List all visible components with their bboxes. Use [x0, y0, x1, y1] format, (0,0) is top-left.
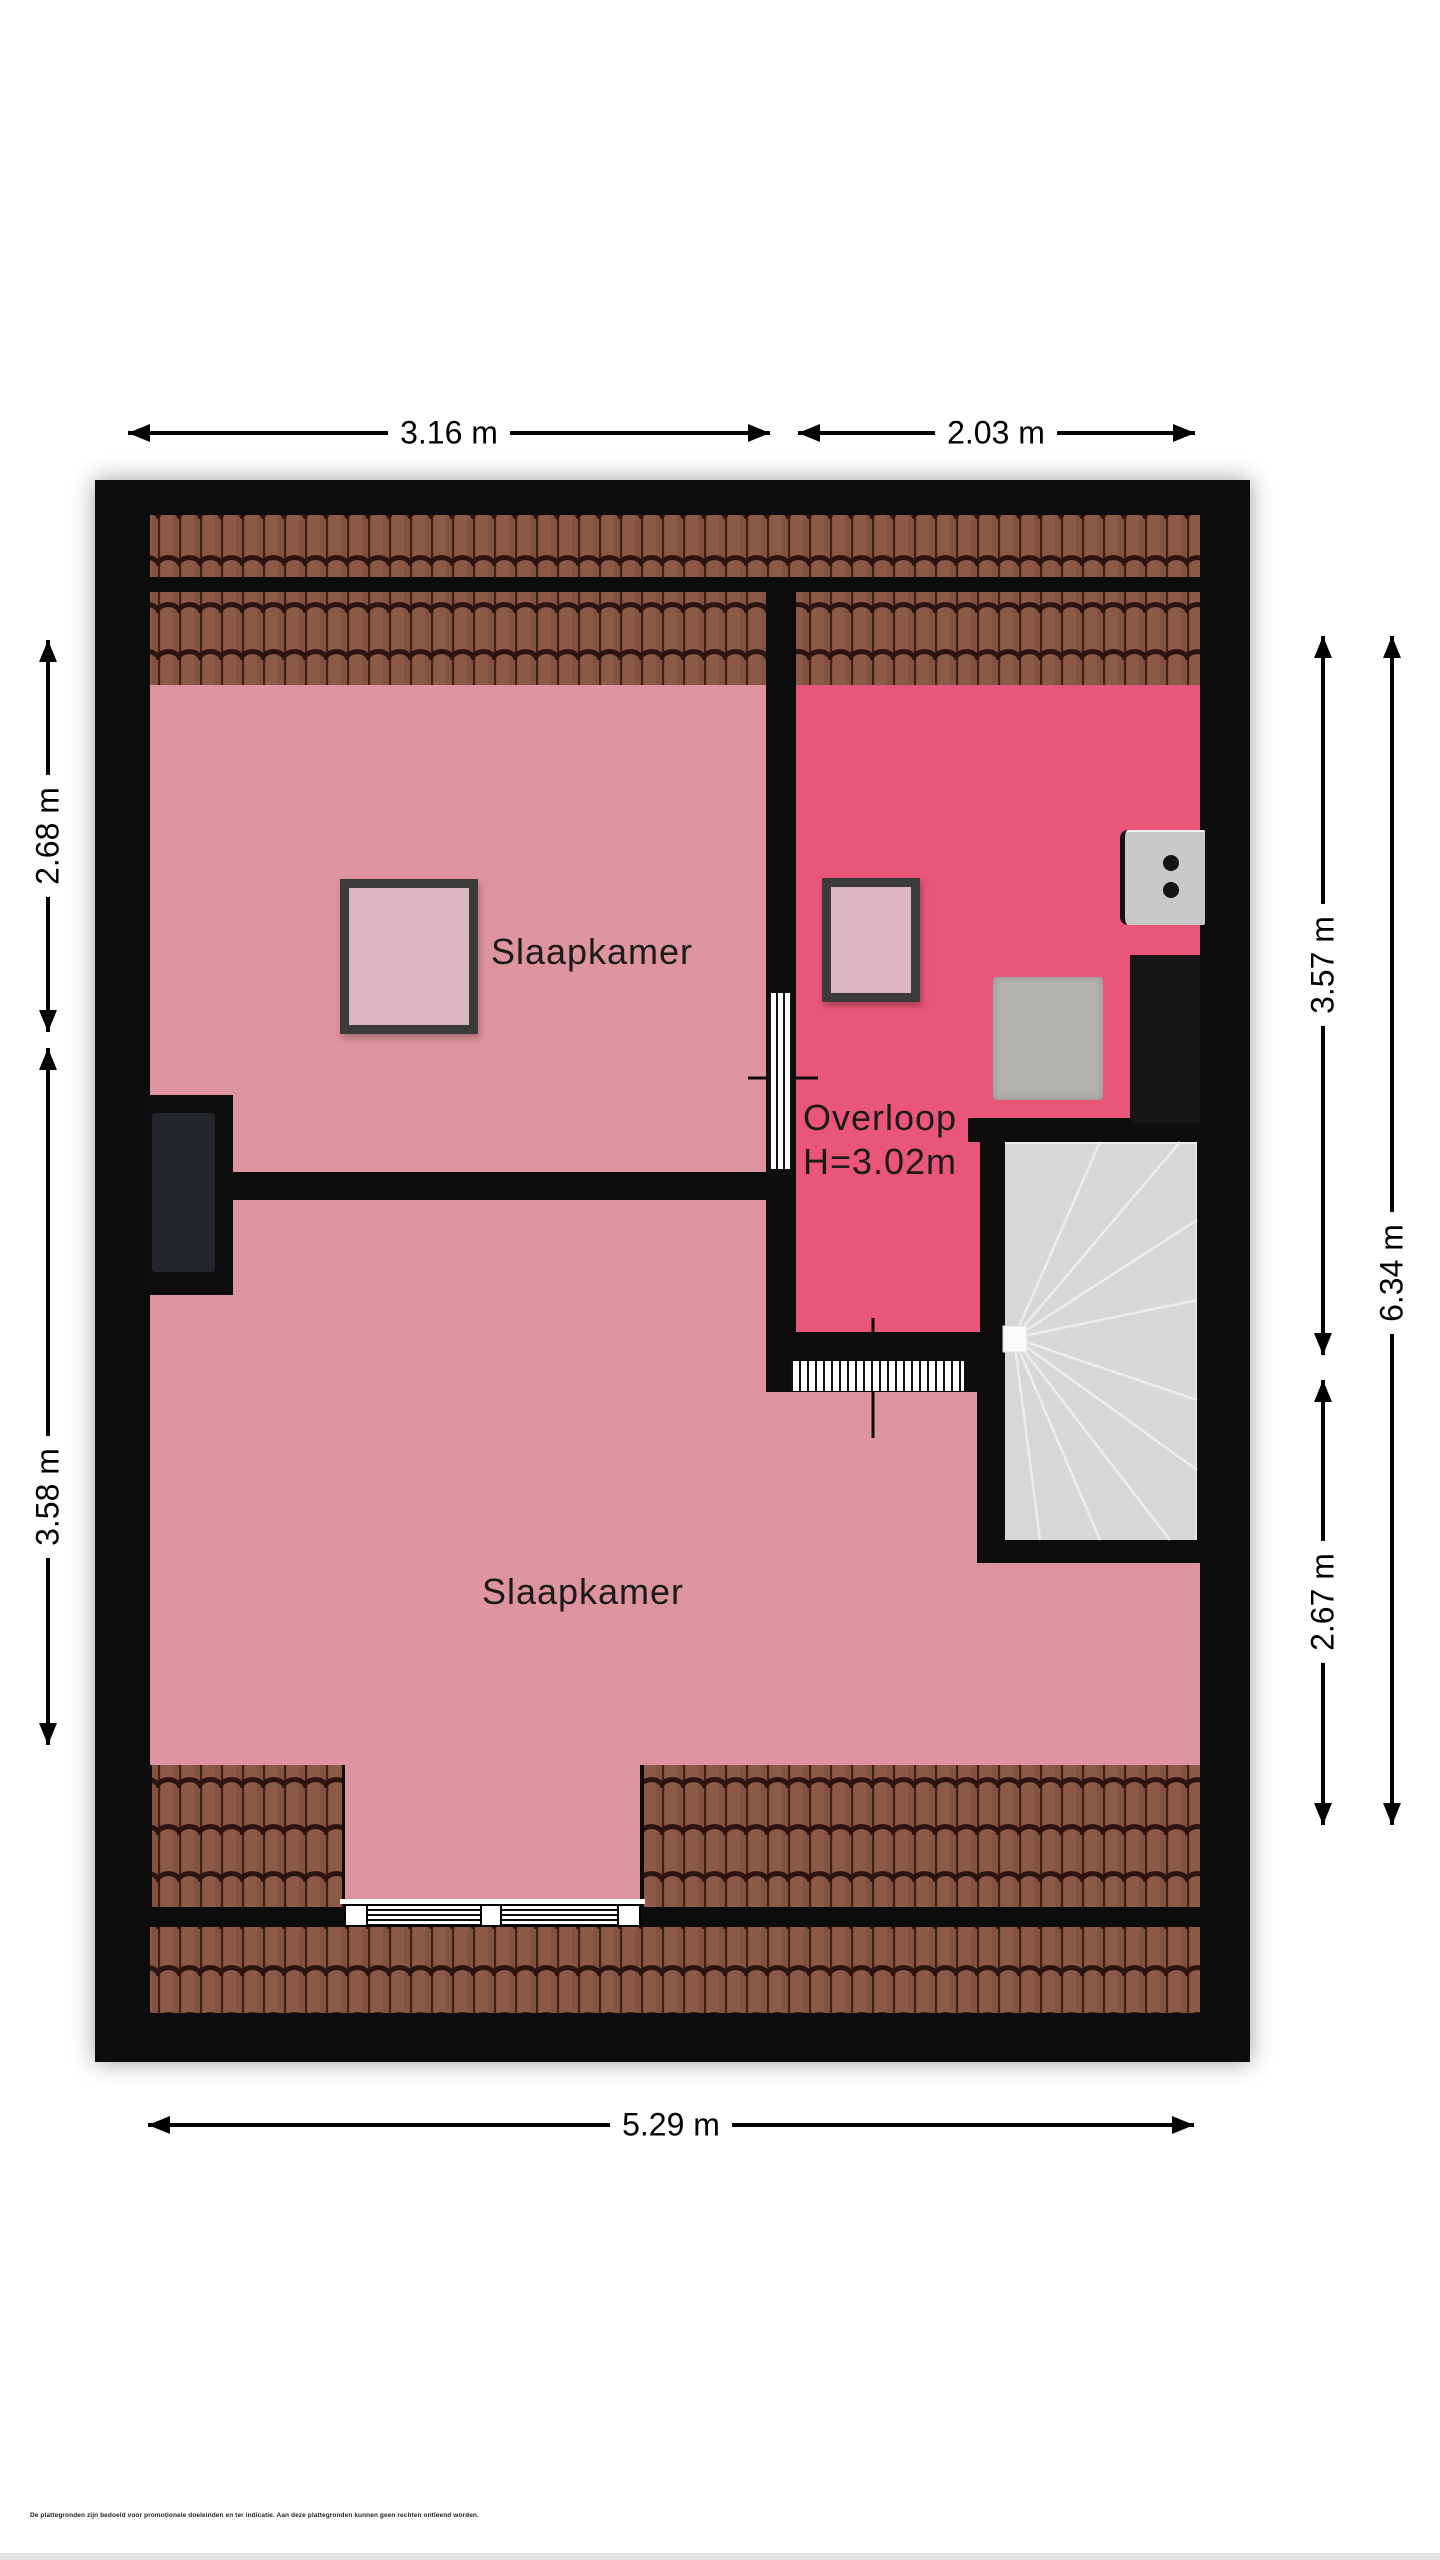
boiler-unit	[1120, 830, 1205, 925]
dimension-label-bottom: 5.29 m	[610, 2107, 732, 2144]
door-opening	[768, 992, 792, 1170]
roof-window-slaapkamer	[340, 879, 478, 1034]
floor-plan: Slaapkamer Overloop H=3.02m Slaapkamer	[95, 480, 1250, 2062]
room-label-overloop: Overloop	[803, 1097, 957, 1139]
stair-treads	[1014, 1142, 1197, 1540]
dimension-label-right-lower: 2.67 m	[1305, 1541, 1342, 1663]
cabinet	[993, 977, 1103, 1100]
wall-recess	[1130, 955, 1200, 1123]
dimension-label-left-lower: 3.58 m	[30, 1436, 67, 1558]
interior-window-opening	[790, 1360, 965, 1392]
room-label-slaapkamer-top: Slaapkamer	[491, 931, 693, 973]
floorplan-page: { "plan": { "kind": "floor plan (attic s…	[0, 0, 1440, 2560]
dimension-label-top-right: 2.03 m	[935, 415, 1057, 452]
dormer-window	[345, 1904, 640, 1927]
disclaimer-text: De plattegronden zijn bedoeld voor promo…	[30, 2512, 479, 2519]
roof-and-stair-graphics	[95, 480, 1250, 2062]
room-label-slaapkamer-bottom: Slaapkamer	[482, 1571, 684, 1613]
dimension-label-top-left: 3.16 m	[388, 415, 510, 452]
page-bottom-bar	[0, 2553, 1440, 2560]
dimension-line-left-lower	[46, 1048, 50, 1745]
roof-tile-areas	[150, 515, 1200, 2013]
stair-center-post	[1003, 1326, 1027, 1352]
dimension-label-left-upper: 2.68 m	[30, 775, 67, 897]
room-height-label-overloop: H=3.02m	[803, 1141, 957, 1183]
roof-window-overloop	[822, 878, 920, 1002]
chimney-block	[150, 1095, 233, 1295]
dimension-label-right-upper: 3.57 m	[1305, 904, 1342, 1026]
dimension-label-right-total: 6.34 m	[1374, 1212, 1411, 1334]
